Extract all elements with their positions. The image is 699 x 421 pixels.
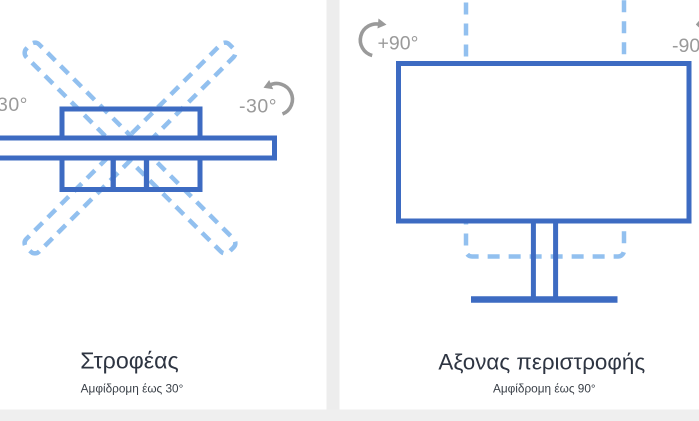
svg-text:Στροφέας: Στροφέας [80, 348, 178, 374]
svg-text:+90°: +90° [378, 33, 419, 55]
svg-text:Αξονας περιστροφής: Αξονας περιστροφής [438, 350, 645, 375]
svg-text:+30°: +30° [0, 94, 28, 116]
svg-text:Αμφίδρομη έως 90°: Αμφίδρομη έως 90° [493, 381, 596, 395]
svg-text:-30°: -30° [239, 96, 277, 118]
svg-text:Αμφίδρομη έως 30°: Αμφίδρομη έως 30° [81, 381, 184, 395]
svg-text:-90°: -90° [672, 35, 699, 57]
